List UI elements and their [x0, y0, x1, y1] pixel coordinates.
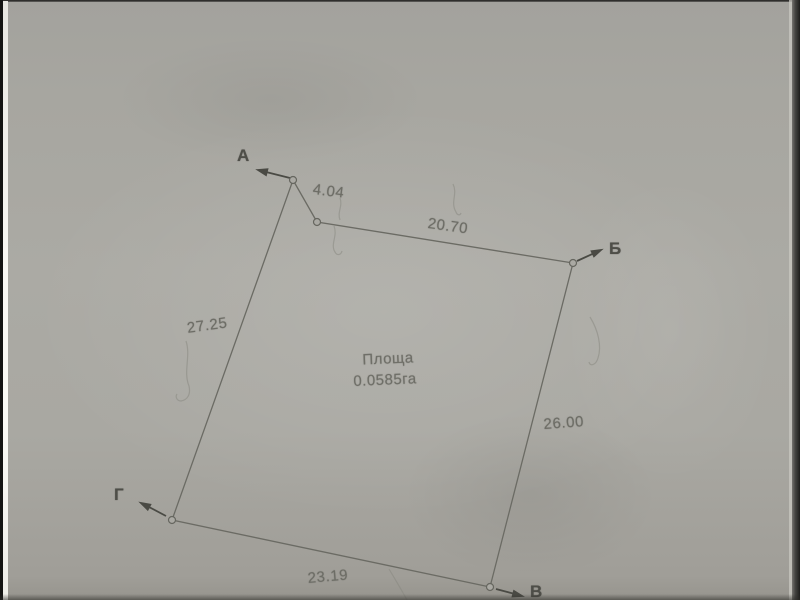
- pen-mark: [333, 226, 342, 255]
- vertex-g-arrow-icon: [141, 503, 150, 510]
- vertex-label-a: А: [237, 146, 249, 166]
- vertex-b-arrow-line: [577, 254, 593, 261]
- area-label: Площа: [352, 347, 416, 371]
- vertex-label-b: Б: [609, 239, 621, 259]
- scanned-survey-sketch: А Б В Г 4.04 20.70 27.25 26.00 23.19 Пло…: [0, 0, 800, 600]
- pen-mark: [589, 317, 600, 365]
- vertex-a-arrow-icon: [258, 169, 267, 175]
- pen-mark: [453, 184, 461, 215]
- vertex-a-arrow-line: [267, 172, 290, 178]
- vertex-label-g: Г: [114, 485, 124, 505]
- scan-edge-bottom: [0, 594, 800, 600]
- vertex-a-marker: [290, 177, 297, 184]
- dimension-segment-a: 4.04: [312, 181, 345, 202]
- scan-edge-right-dark: [792, 0, 800, 600]
- scan-edge-left-light: [3, 1, 8, 600]
- pen-marks: [176, 184, 599, 600]
- vertex-a2-marker: [314, 219, 321, 226]
- scan-edge-top: [0, 0, 800, 2]
- area-value: 0.0585га: [353, 368, 417, 392]
- vertex-b-arrow-icon: [592, 250, 601, 256]
- area-annotation: Площа 0.0585га: [352, 347, 417, 392]
- dimension-bottom: 23.19: [307, 566, 349, 586]
- vertex-v-marker: [487, 584, 494, 591]
- vertex-b-marker: [570, 260, 577, 267]
- vertex-g-arrow-line: [149, 507, 166, 516]
- dimension-right: 26.00: [543, 413, 585, 433]
- pen-mark: [176, 341, 189, 401]
- vertex-g-marker: [169, 517, 176, 524]
- parcel-drawing: [0, 0, 800, 600]
